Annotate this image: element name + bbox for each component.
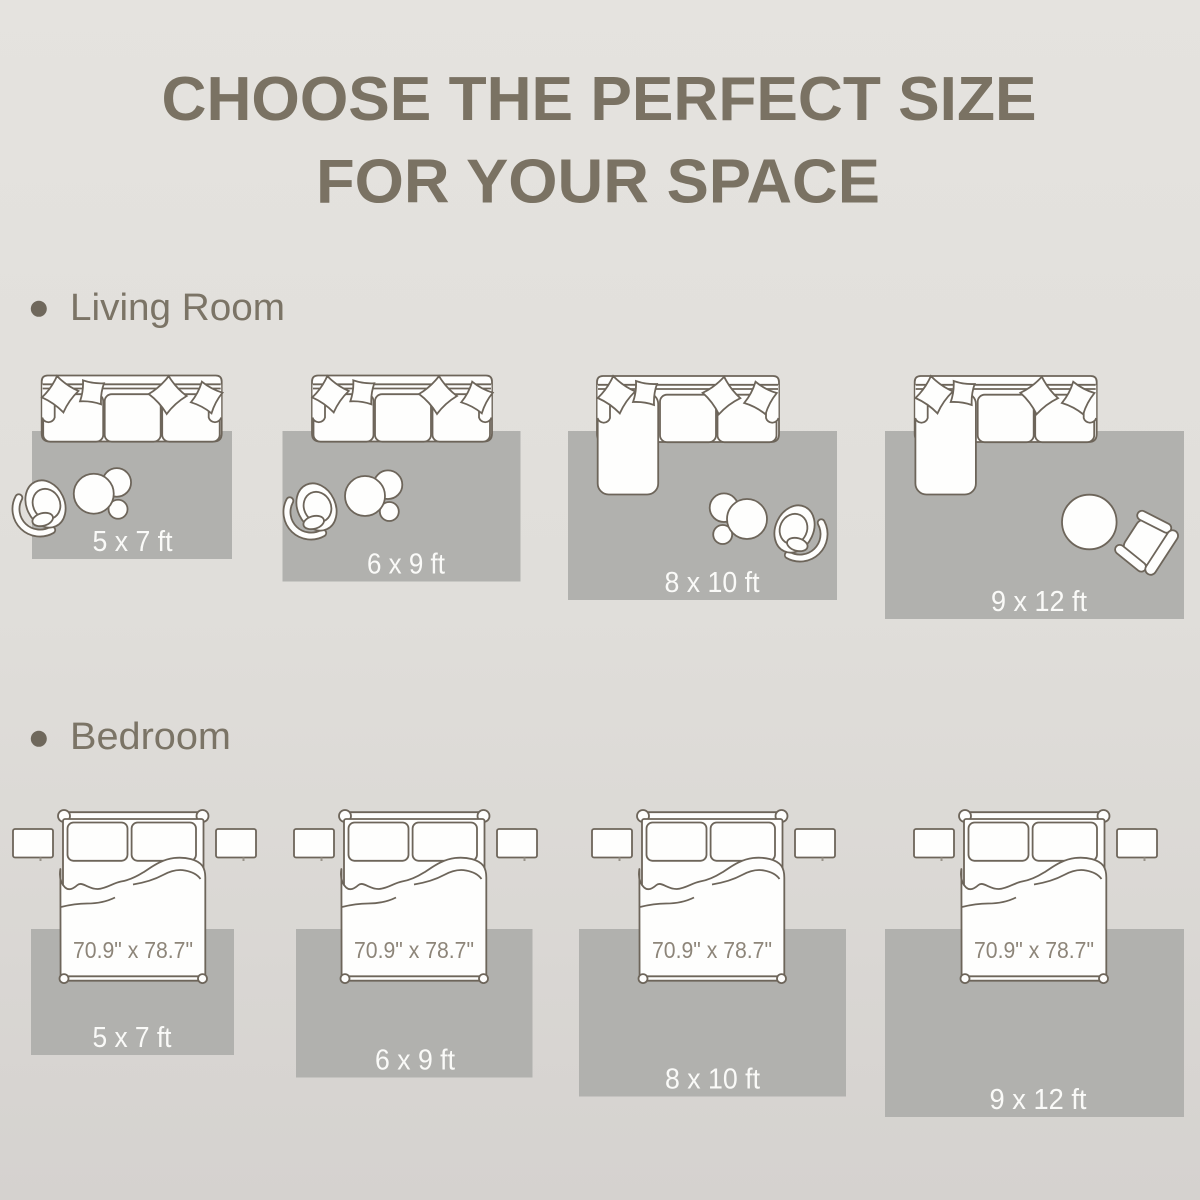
svg-text:Bedroom: Bedroom — [70, 716, 231, 758]
svg-text:5 x 7 ft: 5 x 7 ft — [93, 1022, 172, 1054]
svg-text:70.9" x 78.7": 70.9" x 78.7" — [652, 937, 772, 963]
svg-text:5 x 7 ft: 5 x 7 ft — [93, 526, 173, 558]
svg-text:70.9" x 78.7": 70.9" x 78.7" — [354, 937, 474, 963]
svg-text:CHOOSE THE PERFECT SIZE: CHOOSE THE PERFECT SIZE — [162, 65, 1037, 134]
svg-text:FOR YOUR SPACE: FOR YOUR SPACE — [316, 148, 880, 217]
svg-text:9 x 12 ft: 9 x 12 ft — [990, 1084, 1087, 1116]
svg-text:6 x 9 ft: 6 x 9 ft — [375, 1045, 455, 1077]
svg-text:Living Room: Living Room — [70, 287, 285, 329]
svg-text:6 x 9 ft: 6 x 9 ft — [367, 549, 445, 581]
svg-text:8 x 10 ft: 8 x 10 ft — [665, 1064, 760, 1096]
svg-text:8 x 10 ft: 8 x 10 ft — [665, 567, 760, 599]
svg-text:70.9" x 78.7": 70.9" x 78.7" — [974, 937, 1094, 963]
svg-text:9 x 12 ft: 9 x 12 ft — [991, 586, 1087, 618]
svg-text:70.9" x 78.7": 70.9" x 78.7" — [73, 937, 193, 963]
